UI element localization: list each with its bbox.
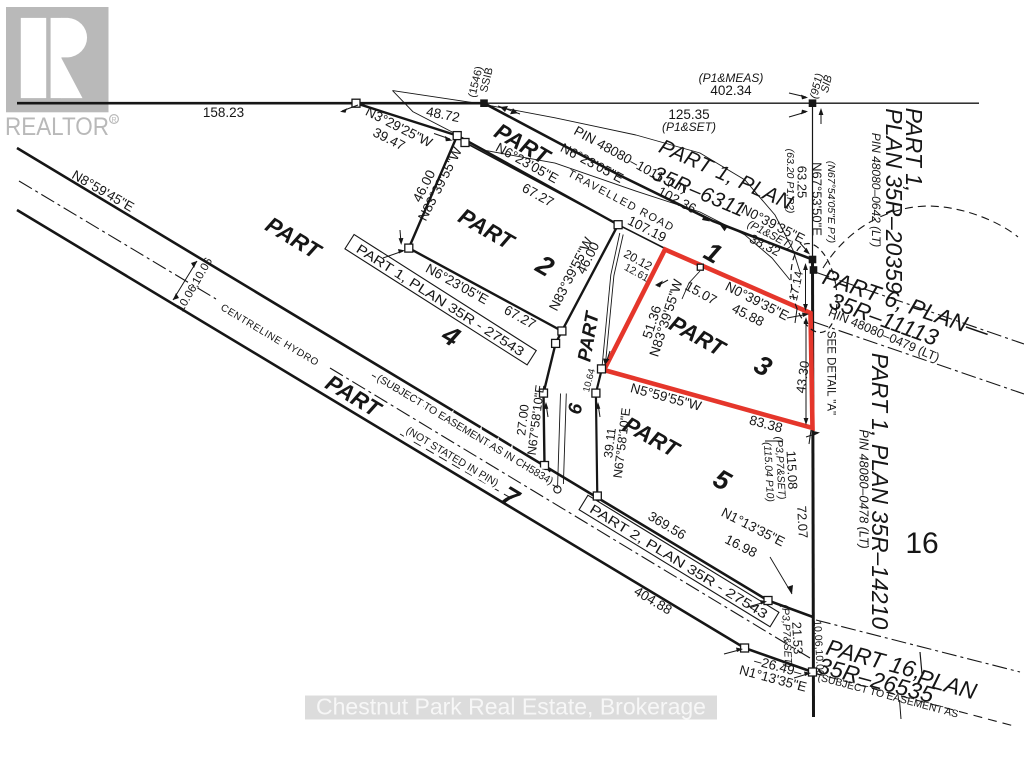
svg-text:(63.20 P1,P2): (63.20 P1,P2) <box>784 149 796 214</box>
svg-text:SEE DETAIL "A": SEE DETAIL "A" <box>825 331 837 415</box>
svg-text:PLAN 35R–20359: PLAN 35R–20359 <box>881 108 907 294</box>
svg-text:REALTOR: REALTOR <box>5 113 109 141</box>
svg-text:PIN 48080–0642 (LT): PIN 48080–0642 (LT) <box>869 133 883 248</box>
svg-text:(P1&SET): (P1&SET) <box>662 120 716 134</box>
svg-text:72.07: 72.07 <box>794 505 811 538</box>
svg-text:(N67°54'05"E P7): (N67°54'05"E P7) <box>825 161 837 243</box>
svg-text:16: 16 <box>905 527 938 560</box>
svg-text:N67°53'50"E: N67°53'50"E <box>810 162 825 236</box>
svg-text:R: R <box>111 117 116 124</box>
svg-text:PIN 48080–0478 (LT): PIN 48080–0478 (LT) <box>857 429 871 548</box>
svg-text:158.23: 158.23 <box>203 105 244 120</box>
svg-text:402.34: 402.34 <box>710 83 752 98</box>
svg-text:Chestnut Park Real Estate, Bro: Chestnut Park Real Estate, Brokerage <box>316 694 706 720</box>
